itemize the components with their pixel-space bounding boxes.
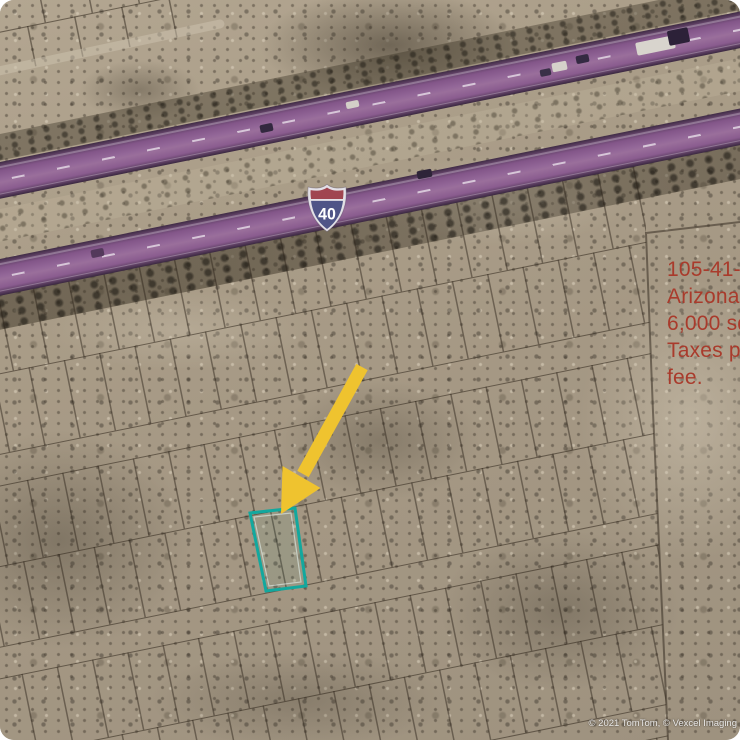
annotation-line: 6,000 sq	[667, 310, 740, 337]
copyright-attribution: © 2021 TomTom, © Vexcel Imaging	[589, 718, 737, 729]
annotation-line: 105-41-0	[667, 256, 740, 283]
annotation-line: Arizona	[667, 283, 740, 310]
listing-photo-stage: 40 105-41-0 Arizona 6,000 sq Taxes pa fe…	[0, 0, 740, 740]
annotation-line: Taxes pa	[667, 337, 740, 364]
listing-annotation: 105-41-0 Arizona 6,000 sq Taxes pa fee.	[667, 256, 740, 391]
annotation-line: fee.	[667, 364, 740, 391]
satellite-map: 40 105-41-0 Arizona 6,000 sq Taxes pa fe…	[0, 0, 740, 740]
